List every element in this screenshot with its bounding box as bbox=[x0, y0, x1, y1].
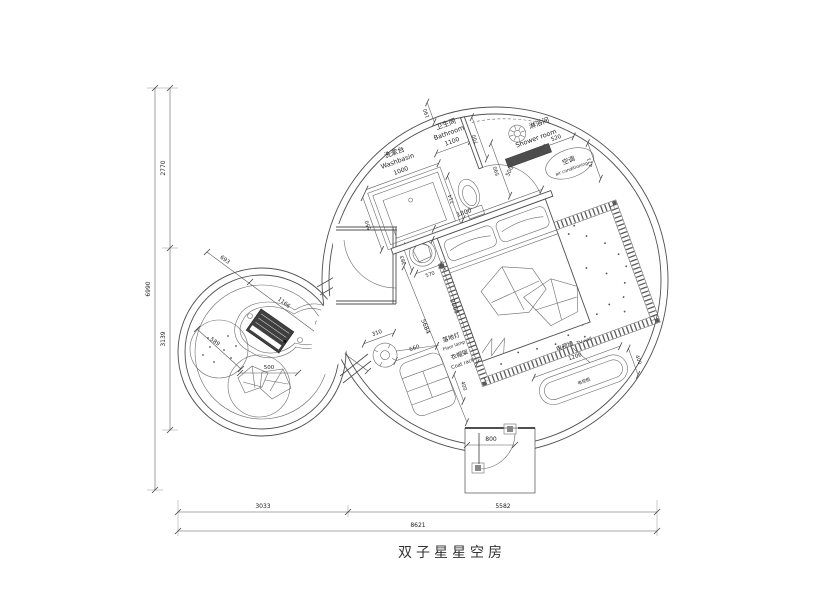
left-dimensions: 6990 2770 3139 bbox=[145, 85, 178, 493]
dim-left-upper: 2770 bbox=[160, 160, 167, 175]
floor-plan-canvas: 6990 2770 3139 3033 5582 8621 双子星星空房 bbox=[0, 0, 837, 592]
floor-lamp: 310 落地灯 Floor lamp bbox=[358, 303, 466, 378]
dim-left-lower: 3139 bbox=[160, 331, 167, 346]
entry-vestibule: 800 bbox=[464, 424, 535, 493]
ac-label-zh: 空调 bbox=[561, 154, 576, 167]
dim-entry-door: 800 bbox=[485, 436, 497, 443]
floor-plan-drawing: 6990 2770 3139 3033 5582 8621 双子星星空房 bbox=[0, 0, 837, 592]
bottom-dimensions: 3033 5582 8621 双子星星空房 bbox=[175, 500, 660, 561]
dim-tv-length: 1200 bbox=[568, 352, 584, 363]
dim-bottom-a: 3033 bbox=[255, 503, 270, 510]
pouf: 589 bbox=[190, 320, 248, 378]
dim-washbasin-width: 1000 bbox=[393, 165, 410, 177]
dim-bottom-b: 5582 bbox=[495, 503, 510, 510]
dim-chair: 500 bbox=[264, 365, 275, 371]
piano-on-table bbox=[246, 309, 294, 353]
dim-stool-b: 570 bbox=[425, 270, 436, 279]
dim-rack-depth: 400 bbox=[459, 381, 468, 392]
plan-title: 双子星星空房 bbox=[398, 545, 506, 561]
tv-cabinet-label: 电视柜 bbox=[577, 375, 592, 386]
dim-tv-depth: 400 bbox=[634, 354, 643, 365]
dim-bed-length: 2000 bbox=[448, 298, 460, 315]
pillow-chair: 500 bbox=[228, 355, 301, 417]
dim-bed-diag: 5684 bbox=[419, 318, 431, 335]
dim-left-total: 6990 bbox=[145, 281, 152, 296]
dim-lounge-table: 1166 bbox=[276, 297, 291, 311]
dim-lamp: 310 bbox=[371, 329, 383, 338]
dim-lounge-seg-a: 693 bbox=[219, 255, 231, 266]
dim-bottom-total: 8621 bbox=[410, 522, 425, 529]
